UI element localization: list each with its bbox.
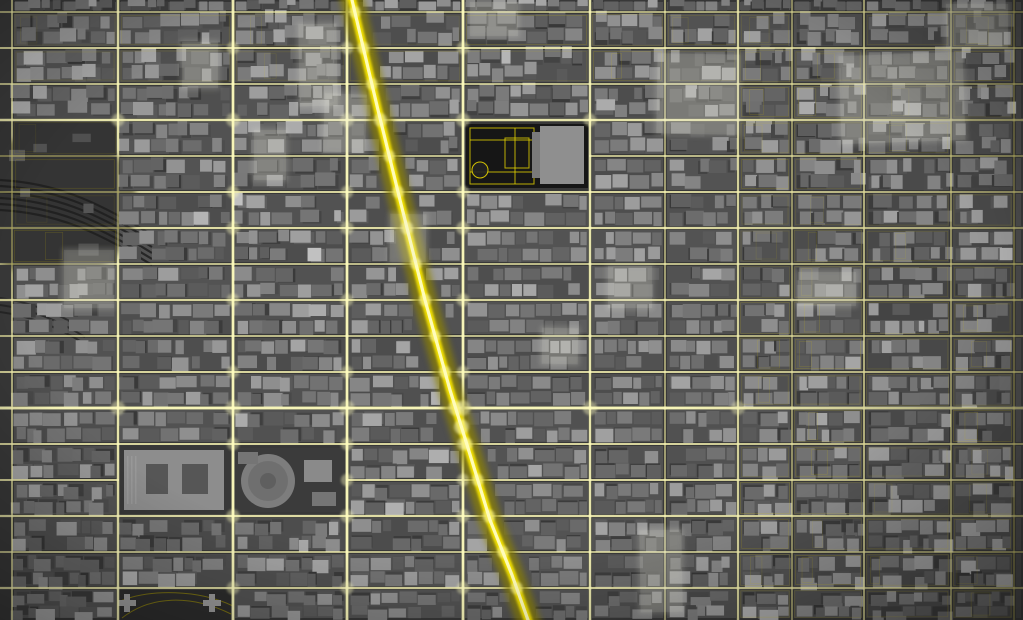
map-viewport[interactable] bbox=[0, 0, 1023, 620]
city-map-render bbox=[0, 0, 1023, 620]
vignette-overlay bbox=[0, 0, 1023, 620]
